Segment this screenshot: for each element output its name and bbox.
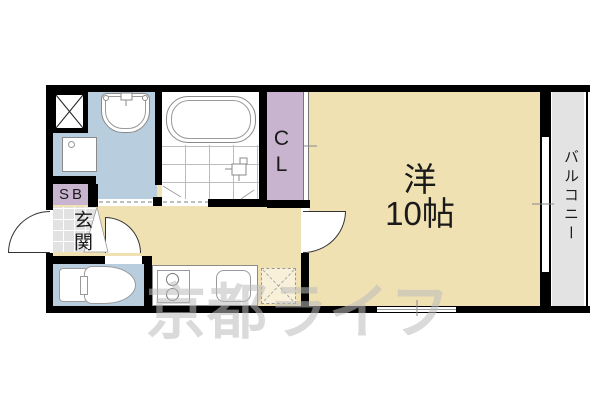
shoebox-label: SB	[54, 186, 90, 203]
wall-toilet-top-left	[46, 256, 105, 264]
main-room-size: 10帖	[350, 197, 490, 231]
balcony-sliding-window	[540, 137, 551, 272]
floorplan-canvas: 洋 10帖 CL バルコニー SB 玄関 京都ライフ	[0, 0, 600, 400]
wall-bathroom-sill-stub	[153, 197, 162, 206]
wall-kitchen-sill	[208, 199, 259, 207]
entrance-label: 玄関	[68, 210, 95, 254]
toilet-door-opening	[105, 256, 142, 264]
wall-closet-bottom	[267, 200, 310, 208]
main-room-label: 洋 10帖	[350, 163, 490, 230]
closet-door-line	[303, 92, 309, 200]
bathtub-inner	[171, 100, 251, 139]
main-room-name: 洋	[350, 163, 490, 197]
washing-machine-drain	[68, 141, 75, 148]
bathroom-tile-grid	[162, 145, 259, 200]
balcony-label: バルコニー	[560, 149, 581, 244]
wall-left-upper	[46, 92, 53, 210]
wall-top	[46, 85, 590, 92]
washroom-threshold-band	[96, 199, 208, 206]
wall-washroom-bathroom	[155, 92, 162, 185]
pipe-space	[56, 95, 83, 128]
toilet-tank-panel	[80, 276, 88, 295]
wall-window-lower	[540, 272, 551, 306]
wall-window-upper	[540, 92, 551, 137]
wall-above-shoebox	[53, 176, 96, 184]
entrance-door-swing	[8, 211, 50, 253]
closet-label: CL	[269, 127, 293, 179]
watermark-text: 京都ライフ	[146, 264, 451, 351]
wash-basin-inner	[105, 96, 146, 129]
balcony-outer-rail	[586, 92, 588, 306]
wall-bathroom-closet	[259, 92, 267, 207]
